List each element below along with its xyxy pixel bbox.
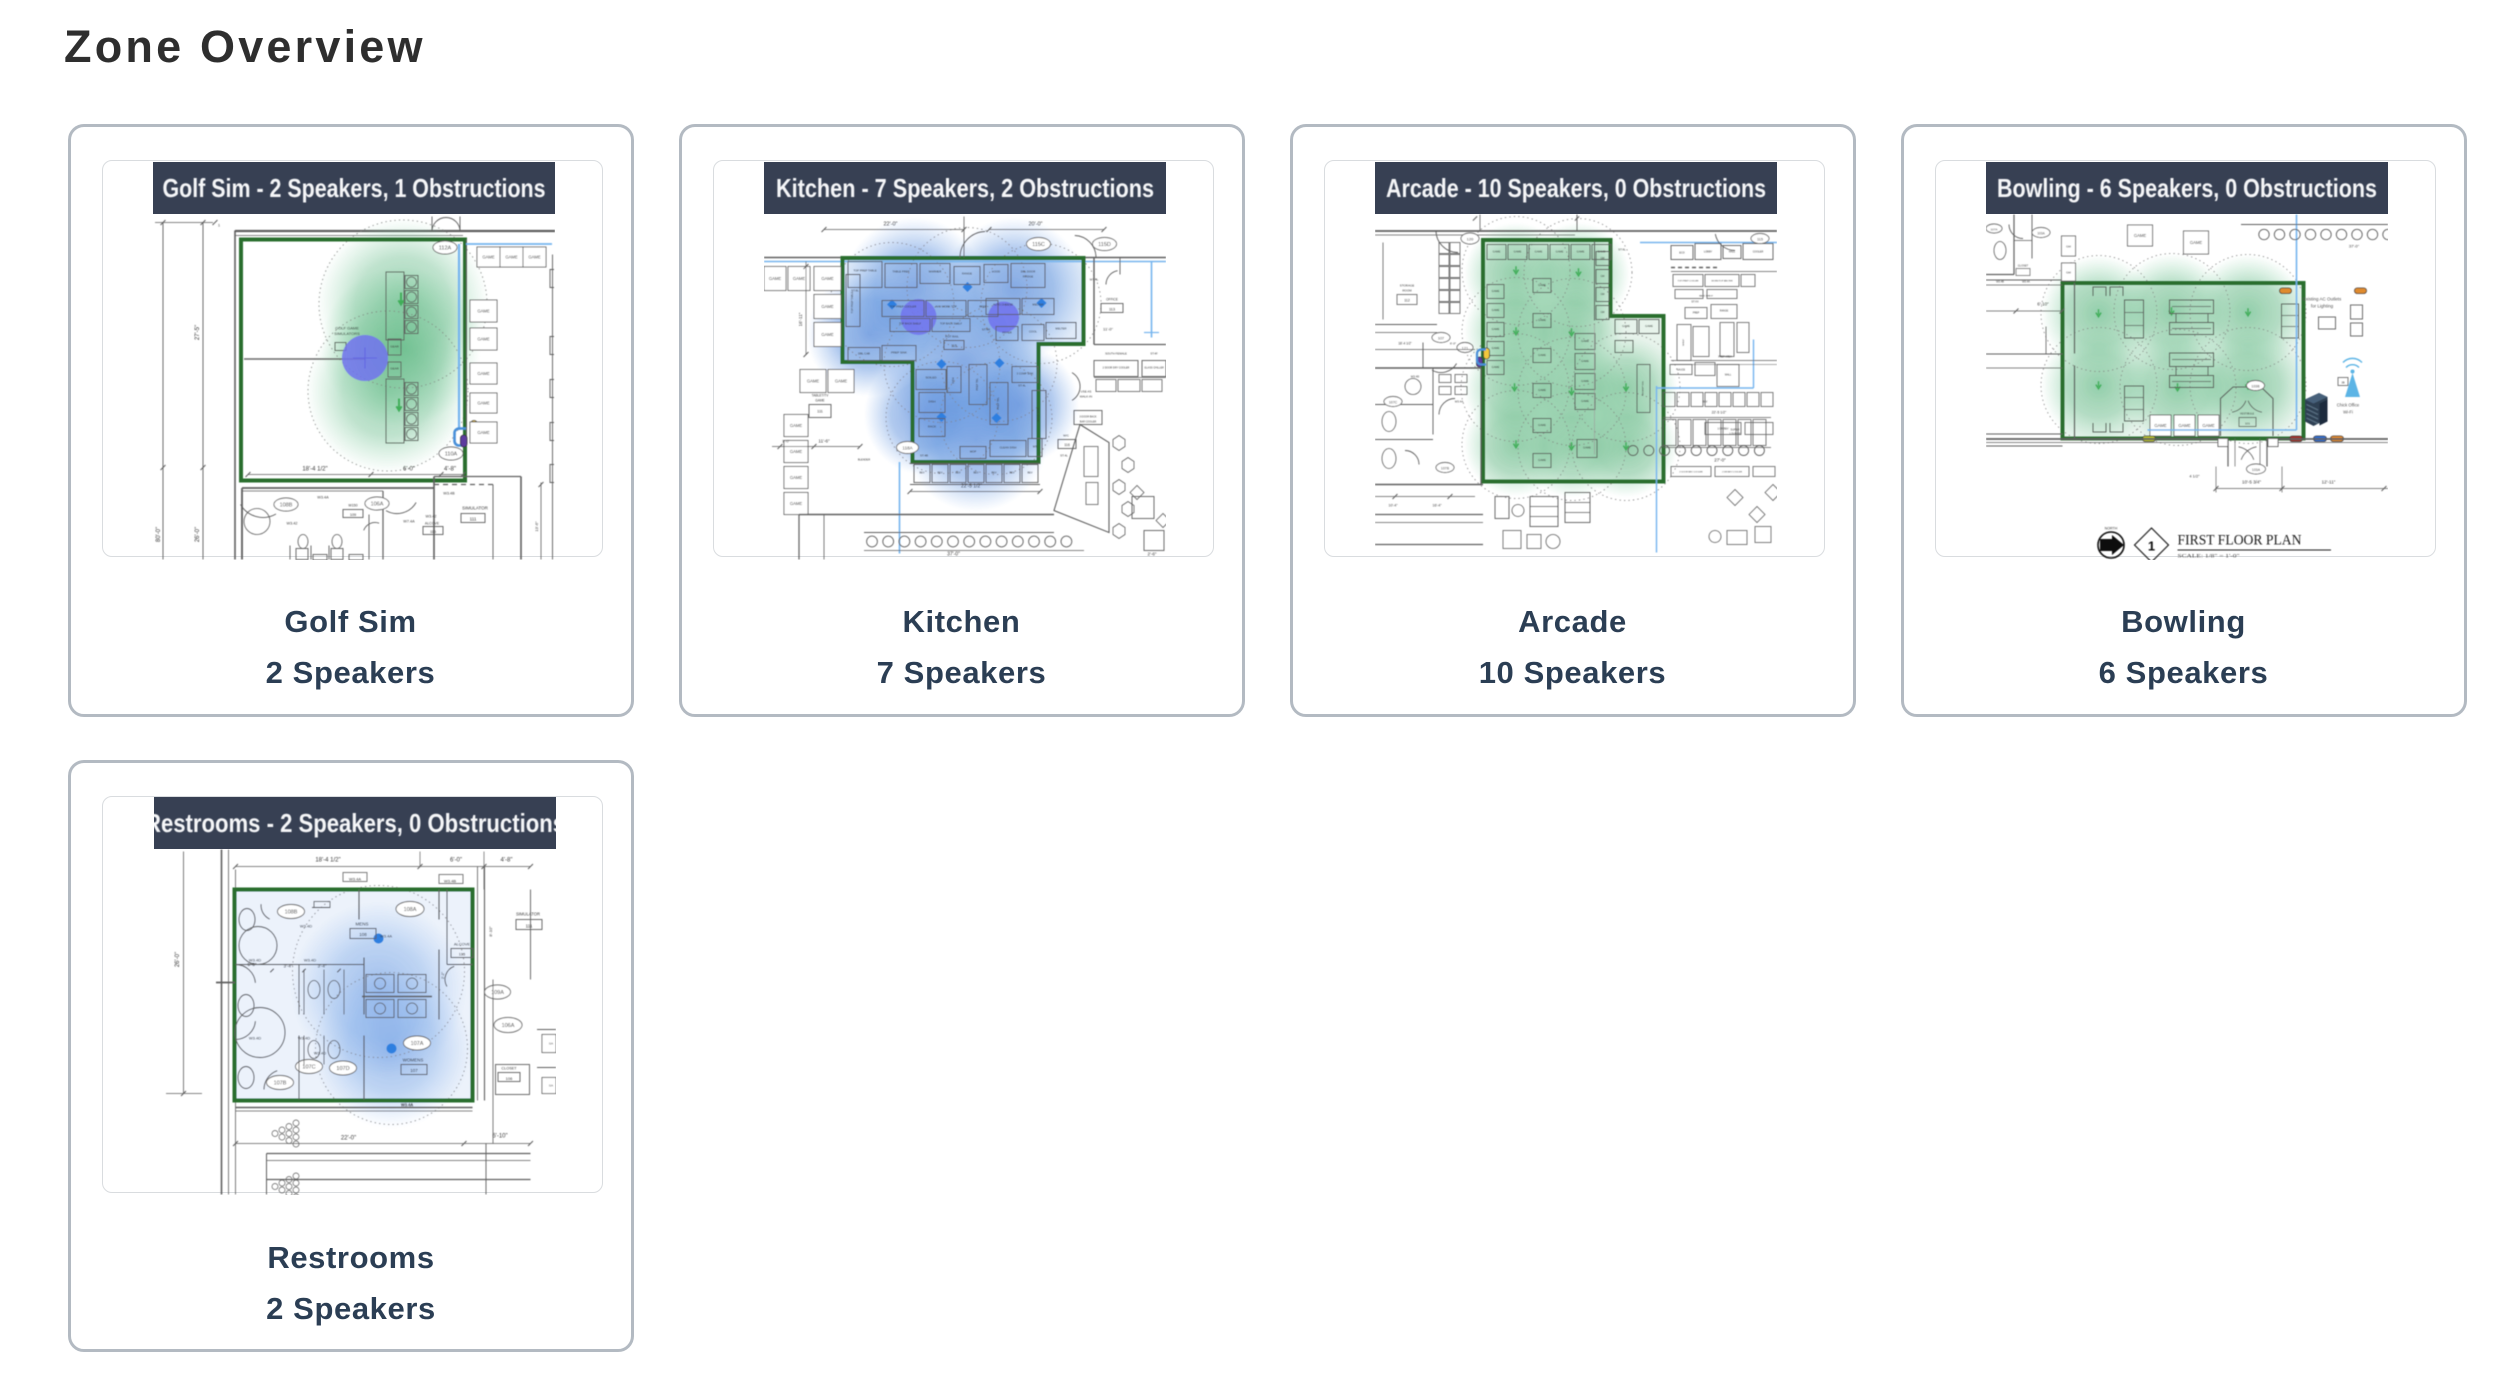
- svg-text:GOLF GAME: GOLF GAME: [335, 325, 359, 330]
- svg-text:TOP PREP COOLER: TOP PREP COOLER: [890, 304, 917, 308]
- svg-text:115: 115: [1757, 237, 1763, 241]
- svg-text:DISH: DISH: [951, 377, 955, 383]
- svg-text:22'-0": 22'-0": [340, 1136, 355, 1142]
- svg-text:FRIDGE: FRIDGE: [1023, 274, 1034, 278]
- svg-text:Arcade - 10 Speakers, 0 Obstru: Arcade - 10 Speakers, 0 Obstructions: [1386, 173, 1766, 203]
- svg-text:BACK SHELF: BACK SHELF: [1699, 294, 1713, 297]
- svg-text:22'-5 1/2": 22'-5 1/2": [1712, 410, 1728, 414]
- svg-text:W7.4A: W7.4A: [403, 519, 415, 523]
- svg-text:TOP PREP COOLER: TOP PREP COOLER: [1678, 280, 1699, 282]
- svg-text:W/C: W/C: [1063, 433, 1070, 437]
- svg-text:GA: GA: [548, 1042, 552, 1046]
- svg-text:GAME: GAME: [1581, 339, 1589, 343]
- svg-text:for Lighting: for Lighting: [2311, 303, 2334, 308]
- svg-text:OFFICE: OFFICE: [1106, 297, 1118, 301]
- svg-text:CLOSET: CLOSET: [501, 1067, 517, 1071]
- svg-text:PREP TBL: PREP TBL: [975, 377, 979, 390]
- svg-text:W3.4A: W3.4A: [400, 1102, 412, 1107]
- svg-text:NORTH: NORTH: [2105, 526, 2118, 530]
- svg-text:1 DR BEV: 1 DR BEV: [1718, 427, 1729, 430]
- svg-text:WS: WS: [1033, 444, 1038, 448]
- svg-text:ALCOVE: ALCOVE: [425, 521, 440, 525]
- svg-text:109: 109: [350, 513, 356, 517]
- svg-text:GAME: GAME: [477, 400, 490, 405]
- svg-text:107D: 107D: [336, 1066, 349, 1072]
- svg-text:4 1/2": 4 1/2": [2189, 473, 2200, 478]
- svg-text:27'-5": 27'-5": [195, 324, 201, 339]
- svg-text:103B: 103B: [2251, 384, 2260, 388]
- svg-text:GAME: GAME: [1581, 359, 1589, 363]
- svg-text:GAME: GAME: [790, 500, 803, 505]
- svg-text:2 DOOR BEV COOLER: 2 DOOR BEV COOLER: [1679, 471, 1703, 473]
- svg-text:16'-11": 16'-11": [798, 312, 803, 326]
- svg-text:ST.4F: ST.4F: [1150, 351, 1158, 355]
- svg-text:11'-0": 11'-0": [1103, 326, 1113, 331]
- svg-text:SIMULATORS: SIMULATORS: [334, 331, 360, 336]
- svg-text:3B: 3B: [2341, 381, 2344, 384]
- svg-text:TABLE PREP: TABLE PREP: [892, 269, 909, 273]
- svg-text:GAME: GAME: [1538, 388, 1546, 392]
- svg-text:107B: 107B: [1441, 466, 1450, 470]
- svg-text:TOP BACK SHELF: TOP BACK SHELF: [899, 321, 922, 325]
- svg-text:3 DOOR BACK: 3 DOOR BACK: [1079, 415, 1096, 418]
- svg-text:W3.4B: W3.4B: [1996, 279, 2004, 283]
- svg-text:STORAGE: STORAGE: [1400, 283, 1415, 287]
- svg-text:106: 106: [505, 1076, 512, 1081]
- svg-text:W3.4D: W3.4D: [299, 924, 311, 929]
- svg-text:110A: 110A: [445, 451, 458, 457]
- svg-text:2'-6": 2'-6": [1148, 551, 1157, 556]
- svg-text:REDEMPTION: REDEMPTION: [1643, 380, 1645, 395]
- svg-text:SOUTH FEMALE: SOUTH FEMALE: [1105, 351, 1127, 355]
- svg-text:115D: 115D: [1098, 242, 1111, 248]
- svg-text:2 DR BEV COOLER: 2 DR BEV COOLER: [1722, 471, 1742, 473]
- svg-text:27'-0": 27'-0": [1714, 457, 1726, 462]
- svg-text:PREP TBL: PREP TBL: [996, 396, 1000, 409]
- svg-text:GM: GM: [2066, 244, 2071, 248]
- svg-text:108A: 108A: [403, 907, 416, 913]
- svg-text:BEV: BEV: [955, 471, 960, 474]
- svg-text:TOP PREP TABLE: TOP PREP TABLE: [850, 291, 854, 313]
- svg-text:FIRST FLOOR PLAN: FIRST FLOOR PLAN: [2178, 532, 2302, 548]
- svg-text:107C: 107C: [302, 1065, 315, 1071]
- svg-text:SHELF: SHELF: [1683, 338, 1685, 346]
- svg-text:TOP PREP TABLE: TOP PREP TABLE: [853, 268, 877, 272]
- svg-text:GEAR: GEAR: [390, 366, 399, 370]
- svg-text:GAME: GAME: [769, 275, 782, 280]
- svg-text:101: 101: [2245, 421, 2250, 425]
- svg-text:SCALE: 1/8" = 1'-0": SCALE: 1/8" = 1'-0": [2178, 554, 2240, 559]
- svg-text:18'-4 1/2": 18'-4 1/2": [1398, 341, 1411, 345]
- svg-text:108B: 108B: [284, 910, 297, 916]
- svg-text:DISH: DISH: [928, 399, 935, 403]
- svg-text:GAME: GAME: [1577, 249, 1585, 253]
- svg-text:26'-0": 26'-0": [195, 526, 201, 541]
- svg-text:SIMULATOR: SIMULATOR: [462, 505, 489, 510]
- svg-text:GAME: GAME: [835, 378, 848, 383]
- svg-text:GAME: GAME: [793, 275, 806, 280]
- svg-text:111: 111: [525, 924, 532, 929]
- svg-text:HALL: HALL: [1729, 250, 1736, 253]
- svg-text:ST.XX: ST.XX: [1691, 299, 1698, 303]
- svg-text:22'-5 1/2": 22'-5 1/2": [961, 483, 982, 489]
- svg-text:W3.4B: W3.4B: [443, 491, 455, 495]
- svg-text:107: 107: [1438, 336, 1444, 340]
- svg-text:Kitchen - 7 Speakers, 2 Obstru: Kitchen - 7 Speakers, 2 Obstructions: [776, 173, 1154, 203]
- svg-text:COOL: COOL: [1029, 329, 1037, 333]
- svg-text:COOLER: COOLER: [1753, 250, 1764, 253]
- svg-text:Existing AC Outlets: Existing AC Outlets: [2303, 296, 2342, 301]
- svg-text:115: 115: [458, 952, 465, 957]
- svg-text:12'-11": 12'-11": [2322, 479, 2336, 484]
- svg-text:GA: GA: [548, 1084, 552, 1088]
- svg-text:RANGE: RANGE: [1720, 309, 1729, 312]
- svg-text:112A: 112A: [439, 245, 452, 251]
- svg-text:ST.4R: ST.4R: [982, 327, 991, 331]
- svg-text:WALK-IN: WALK-IN: [1080, 394, 1092, 398]
- svg-text:GAME: GAME: [2154, 422, 2167, 427]
- svg-text:W3.4A: W3.4A: [317, 495, 329, 499]
- svg-text:26'-0": 26'-0": [175, 952, 181, 967]
- svg-text:37'-0": 37'-0": [2349, 243, 2360, 248]
- svg-text:GAME: GAME: [2134, 232, 2147, 237]
- svg-text:SOILED: SOILED: [925, 375, 937, 379]
- svg-text:W3.4A: W3.4A: [2022, 279, 2030, 283]
- svg-text:Golf Sim - 2 Speakers, 1 Obstr: Golf Sim - 2 Speakers, 1 Obstructions: [163, 173, 546, 203]
- svg-text:MENS: MENS: [355, 922, 368, 927]
- svg-text:W3.42: W3.42: [287, 521, 298, 525]
- svg-text:TOP BACK SHELF: TOP BACK SHELF: [940, 321, 963, 325]
- svg-text:6'-0": 6'-0": [1450, 341, 1456, 345]
- svg-text:GM: GM: [1601, 275, 1605, 278]
- svg-text:GAME: GAME: [2190, 239, 2203, 244]
- svg-text:111: 111: [470, 516, 477, 521]
- svg-text:GAME: GAME: [807, 378, 820, 383]
- svg-text:3'-4": 3'-4": [317, 964, 326, 969]
- svg-text:GAME: GAME: [1645, 324, 1653, 328]
- svg-text:ST.6L: ST.6L: [1618, 247, 1626, 251]
- svg-text:10'-4": 10'-4": [1389, 503, 1399, 507]
- svg-text:USE AS: USE AS: [1081, 389, 1092, 393]
- svg-text:AVG WORK TOP: AVG WORK TOP: [935, 304, 957, 308]
- svg-text:MOP: MOP: [970, 449, 977, 453]
- svg-text:GM: GM: [1601, 311, 1605, 314]
- svg-text:BEV: BEV: [937, 471, 942, 474]
- svg-text:W3.4D: W3.4D: [297, 1036, 309, 1041]
- svg-text:SIMULATOR: SIMULATOR: [515, 912, 539, 917]
- svg-text:BEV: BEV: [991, 471, 996, 474]
- svg-text:Restrooms - 2 Speakers, 0 Obst: Restrooms - 2 Speakers, 0 Obstructions: [154, 808, 556, 838]
- svg-text:LOBBY: LOBBY: [1704, 250, 1713, 253]
- svg-text:ROOM: ROOM: [1402, 288, 1412, 292]
- svg-text:ST.4L: ST.4L: [1060, 453, 1068, 457]
- svg-text:GAME: GAME: [1538, 353, 1546, 357]
- svg-text:WARMER: WARMER: [929, 269, 942, 273]
- svg-text:113: 113: [1109, 307, 1115, 311]
- svg-text:6'-0": 6'-0": [403, 466, 415, 472]
- svg-text:BLENDER: BLENDER: [858, 457, 870, 461]
- svg-text:GAME: GAME: [477, 308, 490, 313]
- svg-text:CLOSET: CLOSET: [2018, 263, 2029, 267]
- svg-text:107C: 107C: [1389, 400, 1398, 404]
- svg-text:6'-0": 6'-0": [450, 858, 462, 864]
- svg-text:2 DOOR DRY COOLER: 2 DOOR DRY COOLER: [1103, 366, 1130, 369]
- svg-text:RANGE: RANGE: [962, 271, 972, 275]
- svg-text:BEV: BEV: [1027, 471, 1032, 474]
- svg-text:1: 1: [2148, 538, 2155, 553]
- svg-text:GAME: GAME: [1492, 346, 1500, 350]
- svg-text:3 COMP SINK: 3 COMP SINK: [1017, 371, 1034, 375]
- svg-text:GAME: GAME: [1535, 249, 1543, 253]
- svg-text:ST.4L: ST.4L: [1018, 383, 1026, 387]
- svg-text:WALL: WALL: [1725, 373, 1732, 376]
- svg-text:GAME: GAME: [1492, 365, 1500, 369]
- svg-text:BEV: BEV: [973, 471, 978, 474]
- svg-text:8'-10": 8'-10": [488, 926, 493, 937]
- svg-text:116: 116: [1064, 443, 1070, 447]
- svg-text:GAME: GAME: [1538, 458, 1546, 462]
- svg-text:GAME: GAME: [2178, 422, 2191, 427]
- svg-text:GAME: GAME: [1556, 249, 1564, 253]
- svg-text:GAME: GAME: [1538, 283, 1546, 287]
- svg-text:GAME: GAME: [477, 370, 490, 375]
- svg-text:W3.4D: W3.4D: [303, 958, 315, 963]
- svg-text:DBL DOOR: DBL DOOR: [1021, 269, 1036, 273]
- svg-text:GAME: GAME: [505, 254, 518, 259]
- svg-text:115C: 115C: [1032, 242, 1045, 248]
- svg-text:BEV: BEV: [1703, 400, 1708, 403]
- svg-text:106A: 106A: [501, 1023, 514, 1029]
- svg-text:HAND SINK: HAND SINK: [1036, 407, 1040, 421]
- svg-text:18'-4 1/2": 18'-4 1/2": [315, 858, 340, 864]
- svg-text:4'-8": 4'-8": [444, 466, 456, 472]
- svg-text:ST.4B: ST.4B: [920, 453, 928, 457]
- svg-text:GAME: GAME: [477, 429, 490, 434]
- svg-text:GAME: GAME: [1581, 379, 1589, 383]
- svg-text:107A: 107A: [410, 1041, 423, 1047]
- svg-text:112: 112: [1404, 298, 1410, 302]
- svg-text:ALCOVE: ALCOVE: [453, 942, 470, 947]
- svg-text:GAME: GAME: [1492, 327, 1500, 331]
- svg-text:118A: 118A: [902, 445, 912, 450]
- svg-text:115: 115: [951, 344, 957, 348]
- svg-text:BEV: BEV: [919, 471, 924, 474]
- svg-text:BAR COOLER: BAR COOLER: [1080, 420, 1097, 423]
- svg-text:GAME: GAME: [790, 448, 803, 453]
- svg-text:GM: GM: [1601, 257, 1605, 260]
- svg-text:Chick Office: Chick Office: [2337, 402, 2360, 407]
- svg-text:W3.4A: W3.4A: [379, 934, 391, 939]
- svg-text:SUPER: SUPER: [1731, 427, 1740, 431]
- svg-text:108: 108: [359, 932, 367, 937]
- svg-text:GM: GM: [2066, 270, 2071, 274]
- svg-text:GM: GM: [1601, 293, 1605, 296]
- svg-text:VESTIBULE: VESTIBULE: [2240, 411, 2255, 415]
- svg-text:GAME: GAME: [1538, 318, 1546, 322]
- svg-text:POT RAIL: POT RAIL: [945, 334, 959, 338]
- svg-text:13'-6": 13'-6": [534, 520, 539, 531]
- svg-text:6'-10": 6'-10": [492, 1134, 507, 1140]
- svg-text:GAME: GAME: [1581, 399, 1589, 403]
- svg-text:SAUCE: SAUCE: [1677, 368, 1686, 371]
- svg-text:16'-4": 16'-4": [1433, 503, 1443, 507]
- svg-text:GAME: GAME: [1493, 249, 1501, 253]
- svg-text:W3.4D: W3.4D: [1411, 374, 1420, 378]
- svg-text:103A: 103A: [2252, 468, 2261, 472]
- svg-text:PREP SINK: PREP SINK: [891, 350, 907, 354]
- svg-text:107B: 107B: [273, 1081, 286, 1087]
- svg-text:1: 1: [218, 222, 221, 227]
- svg-text:HOOD: HOOD: [992, 269, 1000, 273]
- svg-text:111: 111: [817, 409, 823, 413]
- svg-text:GAME: GAME: [1492, 308, 1500, 312]
- svg-text:PREP AREA: PREP AREA: [1718, 355, 1732, 358]
- svg-text:11'-6": 11'-6": [818, 438, 830, 443]
- svg-text:GAME: GAME: [821, 303, 834, 308]
- svg-text:RACK: RACK: [928, 424, 936, 428]
- svg-text:GAME: GAME: [1514, 249, 1522, 253]
- svg-text:Wi-Fi: Wi-Fi: [2343, 409, 2353, 414]
- svg-text:GAME: GAME: [1583, 445, 1591, 449]
- svg-text:W3.4A: W3.4A: [348, 877, 360, 882]
- svg-text:FRYER: FRYER: [1002, 330, 1011, 334]
- svg-text:103A: 103A: [2037, 231, 2045, 235]
- svg-text:5'-5": 5'-5": [247, 962, 256, 967]
- svg-text:106A: 106A: [371, 501, 384, 507]
- svg-text:120: 120: [1467, 236, 1474, 241]
- svg-text:W150: W150: [348, 503, 357, 507]
- svg-text:DBL CAB: DBL CAB: [858, 351, 870, 355]
- svg-text:GAME: GAME: [815, 398, 824, 402]
- svg-text:22'-0": 22'-0": [883, 221, 897, 227]
- svg-text:AUTO CHEESE: AUTO CHEESE: [993, 302, 1013, 306]
- svg-text:18'-4 1/2": 18'-4 1/2": [302, 466, 327, 472]
- svg-text:107: 107: [410, 1068, 418, 1073]
- svg-text:GAME: GAME: [821, 275, 834, 280]
- svg-text:ECO: ECO: [1679, 251, 1684, 254]
- svg-text:Bowling - 6 Speakers, 0 Obstru: Bowling - 6 Speakers, 0 Obstructions: [1997, 173, 2377, 203]
- svg-text:GAME: GAME: [528, 254, 541, 259]
- svg-text:37'-0": 37'-0": [947, 551, 960, 557]
- svg-text:GAME: GAME: [1538, 423, 1546, 427]
- svg-text:GAME: GAME: [821, 331, 834, 336]
- svg-text:GAME: GAME: [790, 422, 803, 427]
- svg-text:115: 115: [430, 530, 436, 534]
- svg-text:W3.4D: W3.4D: [313, 1051, 325, 1056]
- svg-text:1'-0": 1'-0": [782, 438, 791, 443]
- svg-text:2'-2": 2'-2": [441, 971, 445, 979]
- svg-text:W3.4D: W3.4D: [248, 1036, 260, 1041]
- svg-text:W3.4A: W3.4A: [1455, 399, 1464, 403]
- svg-text:GAME: GAME: [2202, 422, 2215, 427]
- svg-text:GLASS CHILLER: GLASS CHILLER: [1144, 366, 1164, 369]
- svg-text:GAME: GAME: [482, 254, 495, 259]
- svg-text:MELTER: MELTER: [1055, 326, 1066, 330]
- svg-text:MELTER: MELTER: [1032, 302, 1043, 306]
- svg-text:W3.4B: W3.4B: [443, 879, 455, 884]
- svg-text:GAME: GAME: [1492, 289, 1500, 293]
- svg-text:W7.4L: W7.4L: [1090, 277, 1099, 281]
- svg-text:WOMENS: WOMENS: [402, 1058, 423, 1063]
- svg-text:BEV: BEV: [1009, 471, 1014, 474]
- svg-text:107A: 107A: [1990, 227, 1997, 231]
- svg-text:3'-4": 3'-4": [283, 964, 292, 969]
- svg-text:10'-5 3/4": 10'-5 3/4": [2242, 479, 2261, 484]
- svg-text:6'-10": 6'-10": [2037, 301, 2049, 306]
- svg-text:W3.42: W3.42: [426, 514, 437, 518]
- svg-text:GAME: GAME: [477, 336, 490, 341]
- svg-text:PREP: PREP: [1693, 311, 1700, 314]
- svg-text:4'-8": 4'-8": [500, 858, 512, 864]
- svg-text:WORK/TOP MELTER: WORK/TOP MELTER: [1711, 280, 1733, 282]
- svg-text:20'-0": 20'-0": [1028, 221, 1042, 227]
- svg-text:108B: 108B: [280, 502, 293, 508]
- svg-text:GAME: GAME: [790, 474, 803, 479]
- svg-text:GEAR: GEAR: [390, 344, 399, 348]
- svg-text:TABLET/TV: TABLET/TV: [812, 393, 830, 397]
- svg-text:GAME: GAME: [1622, 324, 1630, 328]
- svg-text:CLEAN DISH: CLEAN DISH: [1000, 445, 1017, 449]
- svg-text:80'-0": 80'-0": [156, 526, 162, 541]
